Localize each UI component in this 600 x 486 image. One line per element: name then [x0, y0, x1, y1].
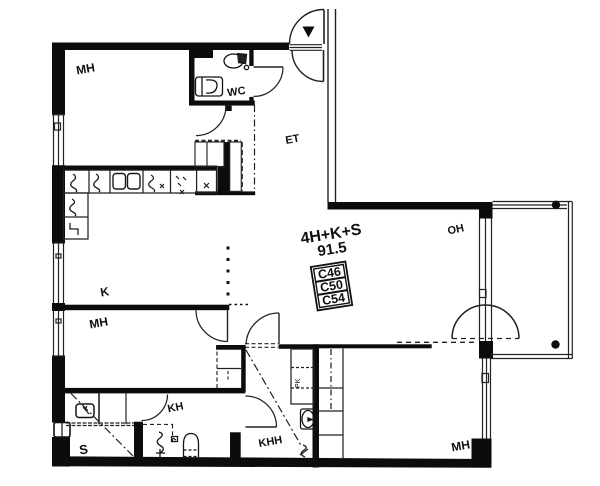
svg-text:ET: ET [285, 133, 301, 147]
svg-text:PK: PK [295, 378, 302, 388]
svg-text:WC: WC [227, 85, 247, 99]
